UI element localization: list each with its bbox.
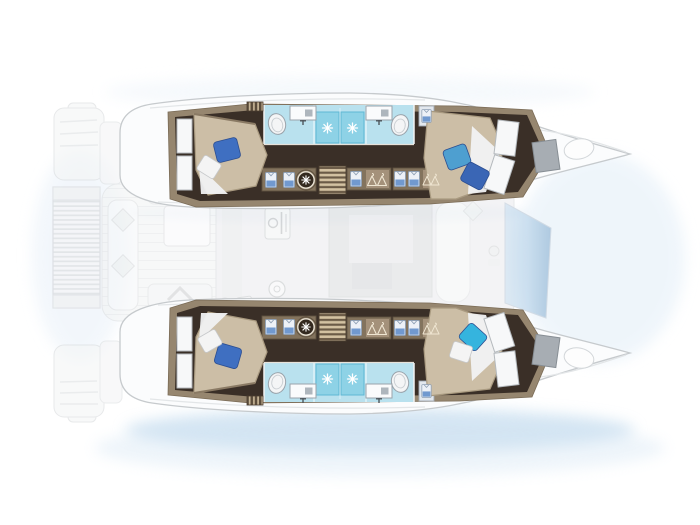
cockpit-table [164, 206, 210, 246]
floorplan-canvas [0, 0, 700, 525]
wardrobe-shirt-icon [266, 320, 277, 335]
galley-counter [222, 206, 242, 306]
wardrobe-shirt-icon [422, 385, 431, 398]
wardrobe-shirt-icon [284, 173, 295, 188]
aft-swim-platform [53, 187, 100, 308]
port-transom-steps [54, 103, 104, 180]
starboard-transom-steps [54, 345, 104, 422]
galley-sink-icon [269, 281, 285, 297]
wardrobe-shirt-icon [395, 321, 406, 336]
wardrobe-shirt-icon [422, 110, 431, 123]
dinette [329, 199, 432, 297]
catamaran-deck-plan [0, 0, 700, 525]
wardrobe-shirt-icon [409, 172, 420, 187]
wardrobe-shirt-icon [409, 321, 420, 336]
wardrobe-shirt-icon [266, 173, 277, 188]
wardrobe-shirt-icon [351, 321, 362, 336]
wardrobe-shirt-icon [284, 320, 295, 335]
stove-icon [265, 208, 290, 239]
wardrobe-shirt-icon [395, 172, 406, 187]
wardrobe-shirt-icon [351, 172, 362, 187]
